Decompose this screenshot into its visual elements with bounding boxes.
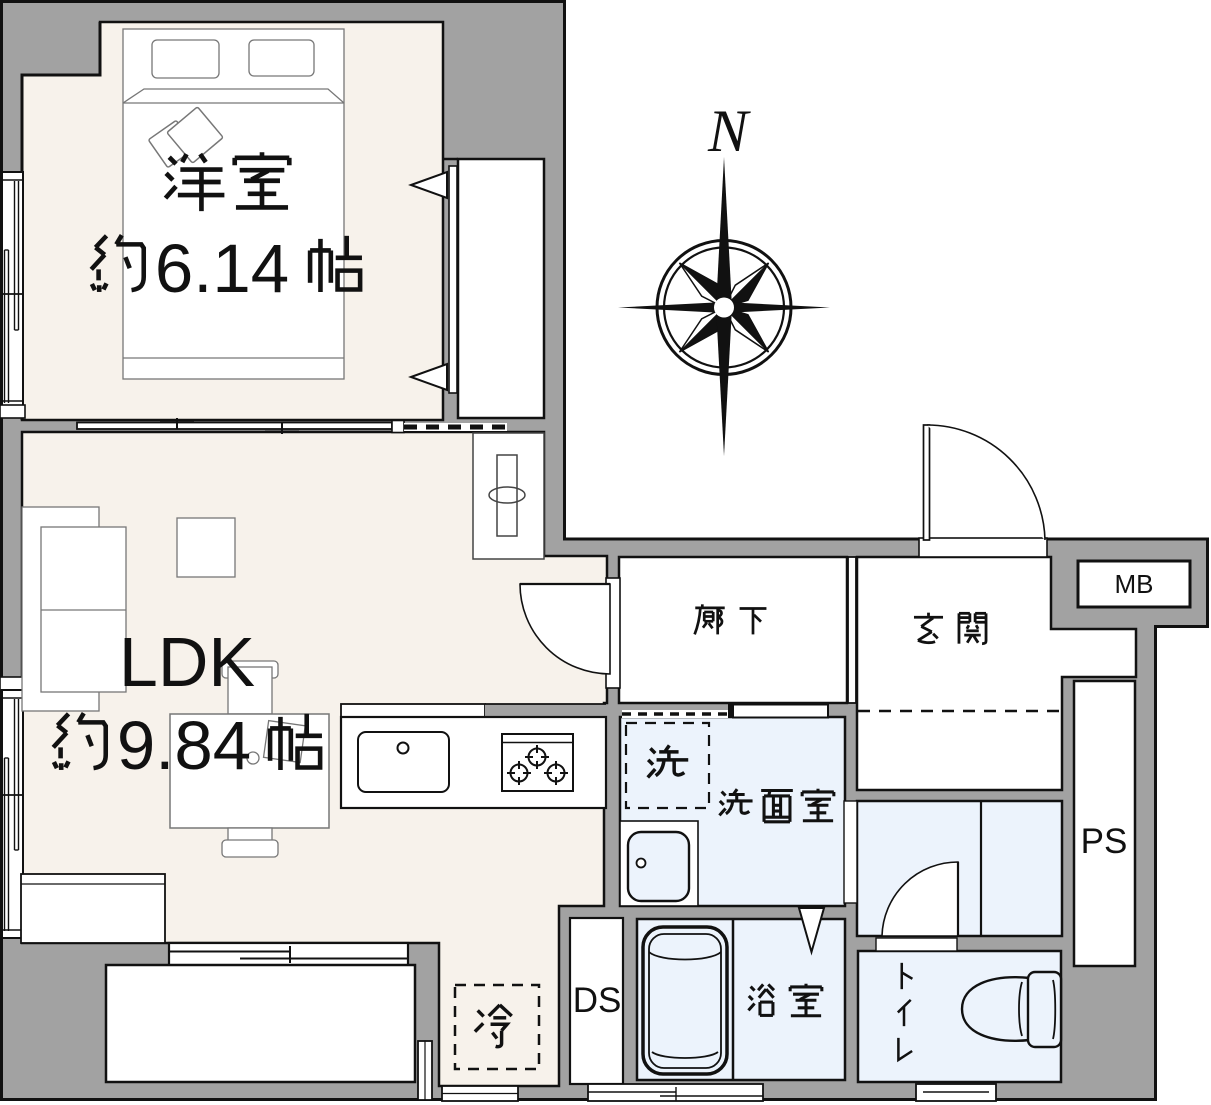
svg-text:6.14: 6.14 — [155, 230, 289, 307]
svg-text:MB: MB — [1115, 569, 1154, 599]
svg-text:N: N — [707, 98, 751, 164]
svg-text:DS: DS — [573, 981, 622, 1020]
svg-text:LDK: LDK — [119, 623, 255, 701]
svg-text:9.84: 9.84 — [117, 707, 251, 784]
svg-text:PS: PS — [1081, 822, 1128, 861]
